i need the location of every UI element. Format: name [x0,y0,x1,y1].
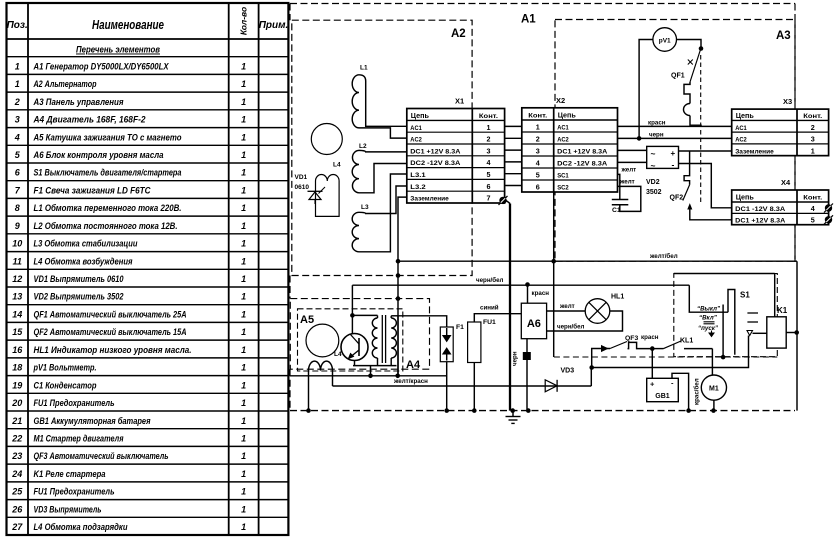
svg-text:1: 1 [241,239,246,249]
svg-text:“Вкл”: “Вкл” [699,314,718,321]
svg-text:4: 4 [536,159,540,168]
svg-text:16: 16 [12,345,23,355]
svg-text:L3.1: L3.1 [410,172,426,179]
svg-text:13: 13 [12,292,22,302]
svg-text:12: 12 [12,274,22,284]
svg-text:~: ~ [651,149,656,159]
svg-text:Поз.: Поз. [7,20,28,31]
svg-text:15: 15 [12,327,23,337]
svg-text:F1: F1 [456,324,464,331]
svg-text:GB1 Аккумуляторная батарея: GB1 Аккумуляторная батарея [34,416,152,426]
svg-text:26: 26 [11,504,23,514]
svg-text:1: 1 [241,487,246,497]
svg-text:24: 24 [11,469,22,479]
svg-text:+: + [650,380,655,389]
svg-text:3: 3 [15,115,20,125]
svg-text:C1: C1 [612,207,621,214]
svg-text:1: 1 [241,522,246,532]
svg-text:0610: 0610 [295,184,310,191]
svg-text:1: 1 [241,274,246,284]
svg-text:1: 1 [241,168,246,178]
svg-text:A4: A4 [406,359,421,371]
svg-text:9: 9 [15,221,20,231]
svg-text:L2 Обмотка постоянного тока 12: L2 Обмотка постоянного тока 12В. [34,221,178,231]
svg-text:7: 7 [486,194,490,203]
svg-text:1: 1 [241,434,246,444]
svg-text:1: 1 [241,310,246,320]
svg-text:черн: черн [512,351,519,366]
svg-text:DC1 +12V 8.3A: DC1 +12V 8.3A [557,149,607,156]
svg-text:черн: черн [649,132,664,139]
svg-text:1: 1 [241,469,246,479]
svg-text:желт/красн: желт/красн [393,378,428,385]
svg-text:A1 Генератор DY5000LX/DY6500LX: A1 Генератор DY5000LX/DY6500LX [33,62,170,72]
svg-text:1: 1 [241,292,246,302]
svg-text:L4: L4 [333,162,341,169]
svg-text:Заземление: Заземление [735,148,774,155]
svg-text:1: 1 [241,79,246,89]
svg-text:L4 Обмотка возбуждения: L4 Обмотка возбуждения [34,256,134,266]
svg-text:1: 1 [241,97,246,107]
svg-text:AC1: AC1 [735,125,747,132]
svg-text:A3 Панель управления: A3 Панель управления [33,97,124,107]
svg-text:1: 1 [15,62,20,72]
svg-text:1: 1 [486,123,490,132]
svg-text:1: 1 [241,363,246,373]
svg-text:черн/бел: черн/бел [476,277,504,284]
svg-text:Цепь: Цепь [736,192,755,201]
svg-text:VD1: VD1 [295,174,308,181]
svg-text:1: 1 [536,123,540,132]
svg-text:~: ~ [651,161,656,171]
svg-text:22: 22 [11,434,22,444]
svg-text:Прим.: Прим. [259,20,289,31]
svg-text:1: 1 [241,504,246,514]
svg-text:VD3 Выпрямитель: VD3 Выпрямитель [34,504,102,514]
svg-text:AC1: AC1 [557,125,569,132]
svg-text:DC1 -12V 8.3A: DC1 -12V 8.3A [735,206,785,213]
svg-text:A5 Катушка зажигания ТО с магн: A5 Катушка зажигания ТО с магнето [33,132,182,142]
svg-text:S1: S1 [740,291,750,300]
svg-text:1: 1 [241,150,246,160]
svg-text:QF3: QF3 [625,335,638,342]
svg-text:VD2 Выпрямитель 3502: VD2 Выпрямитель 3502 [34,292,124,302]
svg-text:14: 14 [12,310,22,320]
svg-text:Перечень элементов: Перечень элементов [76,45,160,56]
svg-text:1: 1 [241,203,246,213]
svg-text:pV1: pV1 [659,38,671,45]
svg-text:Заземление: Заземление [410,196,449,203]
svg-text:Конт.: Конт. [803,194,822,201]
svg-text:черн/бел: черн/бел [557,324,585,331]
svg-text:VD3: VD3 [561,368,575,375]
svg-text:8: 8 [15,203,20,213]
svg-text:“пуск”: “пуск” [698,325,719,332]
svg-text:L1 Обмотка переменного тока 22: L1 Обмотка переменного тока 220В. [34,203,182,213]
svg-text:3: 3 [811,135,815,144]
svg-text:L1: L1 [360,65,368,72]
svg-text:Конт.: Конт. [803,113,822,120]
svg-text:A6: A6 [527,318,541,330]
svg-text:K1 Реле стартера: K1 Реле стартера [34,469,106,479]
svg-text:21: 21 [11,416,22,426]
svg-text:крас/бел: крас/бел [694,378,701,405]
svg-text:1: 1 [241,345,246,355]
svg-text:FU1: FU1 [483,319,496,326]
svg-text:5: 5 [811,215,815,224]
svg-text:F1 Свеча зажигания LD F6TC: F1 Свеча зажигания LD F6TC [34,186,151,196]
svg-text:5: 5 [536,171,540,180]
svg-text:A3: A3 [776,30,791,42]
svg-text:красн: красн [532,290,550,297]
svg-text:KL1: KL1 [680,338,693,345]
svg-text:X2: X2 [556,96,565,105]
svg-text:QF3 Автоматический выключатель: QF3 Автоматический выключатель [34,451,169,461]
svg-text:C1 Конденсатор: C1 Конденсатор [34,380,97,390]
svg-text:2: 2 [14,97,20,107]
svg-text:+: + [671,149,676,158]
svg-text:3: 3 [486,146,490,155]
svg-text:3502: 3502 [646,189,662,196]
svg-text:FU1 Предохранитель: FU1 Предохранитель [34,487,115,497]
svg-text:DC2 -12V 8.3A: DC2 -12V 8.3A [557,161,607,168]
svg-text:GB1: GB1 [655,393,670,400]
svg-text:19: 19 [12,380,22,390]
svg-text:Конт.: Конт. [528,112,547,119]
svg-text:DC1 +12V 8.3A: DC1 +12V 8.3A [410,148,460,155]
svg-text:4: 4 [811,204,815,213]
svg-text:VD1 Выпрямитель 0610: VD1 Выпрямитель 0610 [34,274,124,284]
svg-text:18: 18 [12,363,22,373]
svg-text:FU1 Предохранитель: FU1 Предохранитель [34,398,115,408]
svg-text:QF1 Автоматический выключатель: QF1 Автоматический выключатель 25А [34,310,187,320]
svg-text:1: 1 [241,416,246,426]
svg-text:1: 1 [241,62,246,72]
svg-text:Наименование: Наименование [92,18,164,32]
svg-text:желт/бел: желт/бел [649,253,678,260]
svg-text:1: 1 [241,186,246,196]
svg-text:AC1: AC1 [410,125,422,132]
svg-text:1: 1 [241,398,246,408]
svg-text:M1: M1 [709,386,719,393]
svg-text:SC2: SC2 [557,185,569,192]
svg-text:K1: K1 [777,306,788,315]
svg-text:1: 1 [241,380,246,390]
svg-text:L4 Обмотка подзарядки: L4 Обмотка подзарядки [34,522,128,532]
svg-text:6: 6 [486,182,490,191]
svg-text:Конт.: Конт. [479,113,498,120]
svg-text:1: 1 [241,132,246,142]
svg-text:1: 1 [241,115,246,125]
svg-text:11: 11 [13,256,22,266]
svg-text:A2: A2 [451,28,466,40]
svg-text:желт: желт [621,167,637,174]
svg-text:X1: X1 [455,97,464,106]
svg-text:A2 Альтернатор: A2 Альтернатор [33,79,97,89]
svg-text:QF2 Автоматический выключатель: QF2 Автоматический выключатель 15А [34,327,187,337]
svg-text:HL1: HL1 [611,294,624,301]
svg-text:DC2 -12V 8.3A: DC2 -12V 8.3A [410,160,460,167]
svg-text:3: 3 [536,147,540,156]
svg-text:10: 10 [12,239,22,249]
svg-text:1: 1 [15,79,20,89]
svg-text:AC2: AC2 [735,137,747,144]
svg-text:M1 Стартер двигателя: M1 Стартер двигателя [34,434,125,444]
svg-text:“Выкл”: “Выкл” [697,306,721,313]
svg-text:Цепь: Цепь [558,110,577,119]
svg-text:L4: L4 [334,351,342,358]
svg-text:1: 1 [241,451,246,461]
svg-text:6: 6 [536,183,540,192]
svg-text:1: 1 [241,327,246,337]
svg-text:желт: желт [559,303,575,310]
svg-text:HL1 Индикатор низкого уровня м: HL1 Индикатор низкого уровня масла. [34,345,192,355]
svg-text:-: - [672,160,675,170]
svg-text:красн: красн [648,120,666,127]
svg-text:X4: X4 [781,178,791,187]
svg-text:2: 2 [811,123,815,132]
svg-text:2: 2 [486,135,490,144]
svg-text:X3: X3 [783,97,792,106]
svg-text:QF1: QF1 [671,73,685,80]
svg-text:Цепь: Цепь [411,111,430,120]
svg-text:pV1 Вольтметр.: pV1 Вольтметр. [33,363,97,373]
svg-text:A1: A1 [521,14,536,26]
svg-text:4: 4 [486,158,490,167]
svg-text:L2: L2 [359,143,367,150]
svg-text:DC1 +12V 8.3A: DC1 +12V 8.3A [735,217,785,224]
svg-text:1: 1 [811,146,815,155]
svg-text:5: 5 [486,170,490,179]
svg-text:AC2: AC2 [410,137,422,144]
svg-text:Кол-во: Кол-во [239,7,249,35]
svg-text:A5: A5 [300,314,314,326]
svg-text:A6 Блок контроля уровня масла: A6 Блок контроля уровня масла [33,150,164,160]
svg-text:2: 2 [536,135,540,144]
svg-text:VD2: VD2 [646,179,660,186]
svg-text:4: 4 [14,132,20,142]
svg-text:25: 25 [11,487,23,497]
svg-text:Цепь: Цепь [736,111,755,120]
svg-text:L3.2: L3.2 [410,184,426,191]
svg-text:синий: синий [480,305,499,312]
svg-text:AC2: AC2 [557,137,569,144]
svg-text:SC1: SC1 [557,173,569,180]
svg-text:L3: L3 [361,204,369,211]
svg-text:20: 20 [11,398,22,408]
svg-text:красн: красн [641,334,659,341]
svg-text:L3 Обмотка стабилизации: L3 Обмотка стабилизации [34,239,138,249]
svg-text:1: 1 [241,221,246,231]
svg-text:23: 23 [11,451,22,461]
svg-text:QF2: QF2 [670,195,684,202]
svg-text:желт: желт [619,179,635,186]
svg-text:S1 Выключатель двигателя/старт: S1 Выключатель двигателя/стартера [34,168,182,178]
svg-text:A4 Двигатель 168F, 168F-2: A4 Двигатель 168F, 168F-2 [33,115,146,125]
svg-text:27: 27 [11,522,23,532]
svg-text:1: 1 [241,256,246,266]
